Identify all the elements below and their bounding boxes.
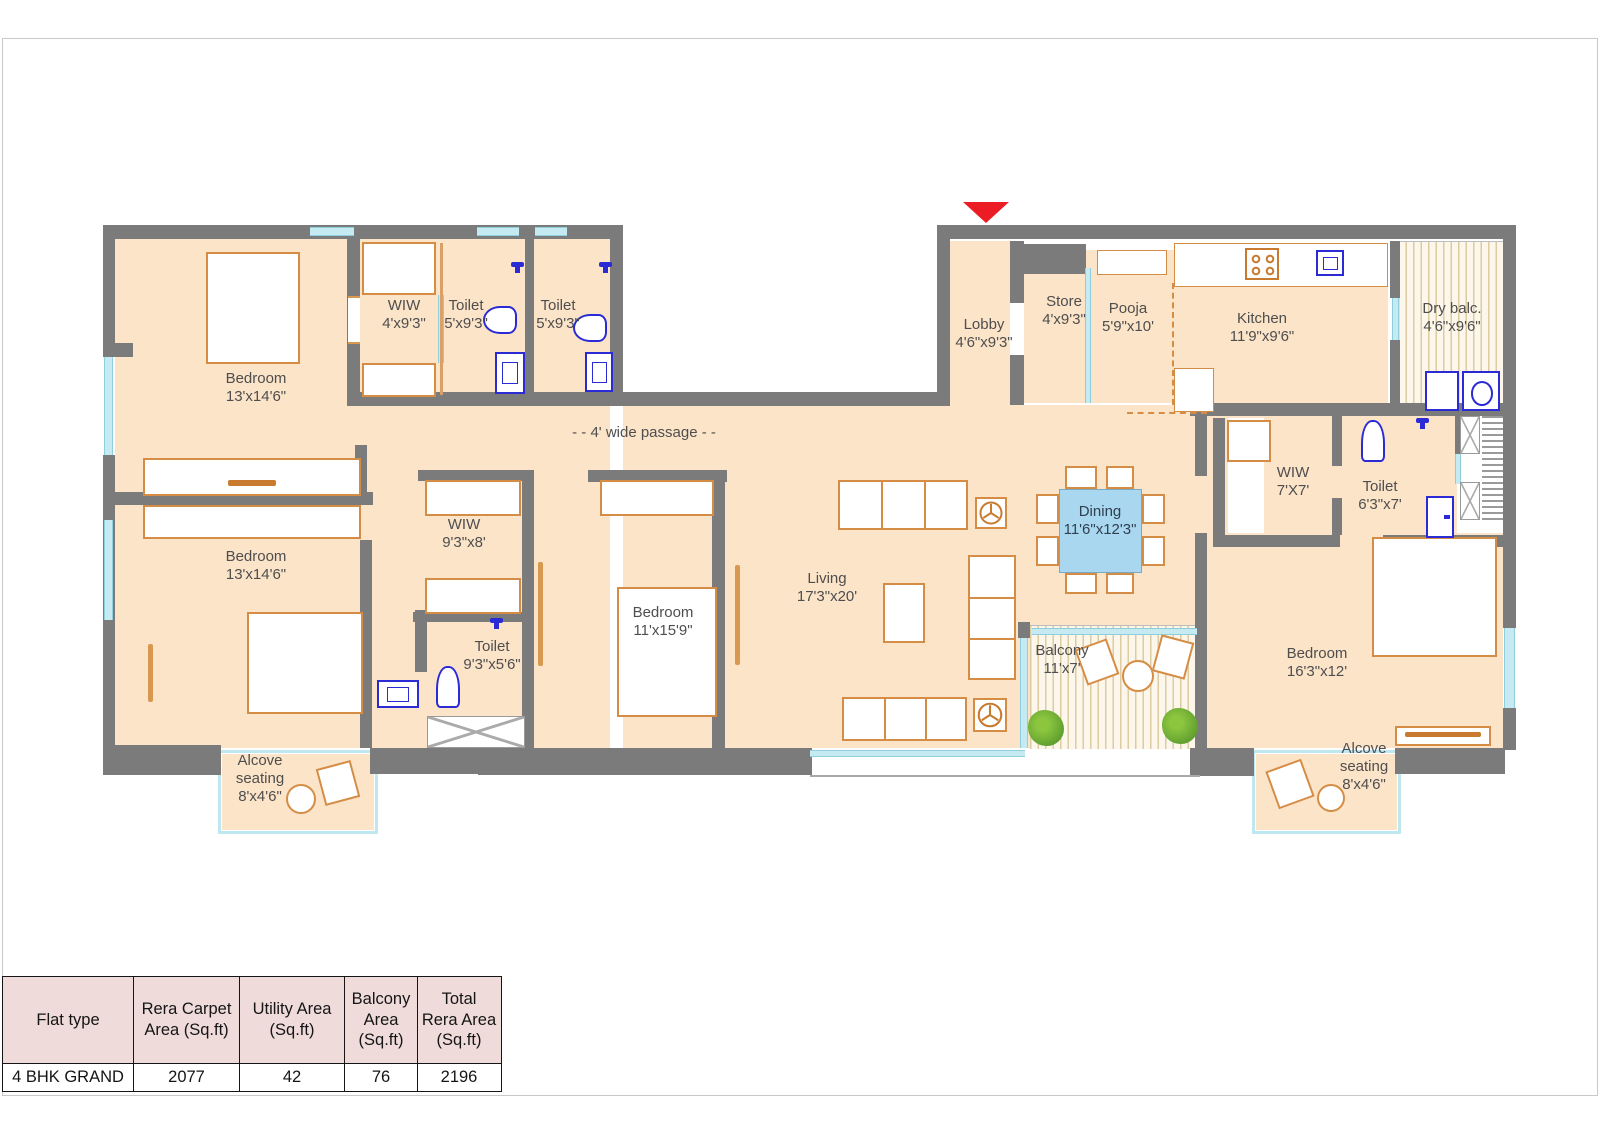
window [1392,298,1399,340]
entrance-arrow [963,202,1009,223]
wardrobe [143,505,361,539]
window [310,227,354,236]
room-label-toilet4: Toilet6'3"x7' [1358,478,1402,514]
closet [362,363,436,397]
wardrobe [143,458,361,496]
area-table-data-row: 4 BHK GRAND 2077 42 76 2196 [3,1065,502,1093]
side-table [975,497,1007,529]
wall [103,343,133,357]
bed [206,252,300,364]
room-label-alcove-right: Alcove seating8'x4'6" [1324,740,1404,794]
wall [1390,340,1400,403]
sofa [842,697,967,741]
room-label-bedroom1: Bedroom13'x14'6" [226,370,287,406]
room-label-toilet3: Toilet9'3"x5'6" [463,638,520,674]
passage-label: - - 4' wide passage - - [572,424,716,442]
pooja-shelf [1097,250,1167,275]
room-label-toilet1: Toilet5'x9'3" [444,297,488,333]
fan-icon [977,499,1005,527]
wall [525,228,534,398]
dining-chair [1065,573,1097,594]
room-label-toilet2: Toilet5'x9'3" [536,297,580,333]
door-leaf [148,644,153,702]
kitchen-appliance [1174,368,1214,412]
faucet-icon [1416,418,1429,423]
bed [1372,537,1497,657]
wall [478,748,812,775]
side-table [973,698,1007,732]
wall [415,610,427,672]
wall [1213,418,1225,535]
sofa [838,480,968,530]
wall [1195,416,1207,476]
dining-chair [1065,466,1097,489]
bed [247,612,363,714]
toilet-sink [585,352,613,392]
window [1504,628,1515,708]
wall [103,225,115,345]
kitchen-sink [1316,250,1344,276]
duct-shaft [1460,482,1480,520]
wall [610,392,950,406]
wall [103,745,221,775]
dining-chair [1106,573,1134,594]
wall [1503,225,1516,628]
dining-chair [1142,536,1165,566]
window [1455,454,1461,484]
toilet-sink [495,352,525,394]
console-unit [968,555,1016,680]
coffee-table [883,583,925,643]
wall [950,225,1515,239]
edge-line [810,775,1200,777]
dining-chair [1036,494,1059,524]
table-header-utility: Utility Area (Sq.ft) [239,976,346,1065]
table-header-total-rera: Total Rera Area (Sq.ft) [417,976,502,1065]
dining-dashed-boundary [1127,412,1207,414]
room-label-bedroom4: Bedroom16'3"x12' [1287,645,1348,681]
room-label-wiw2: WIW9'3"x8' [442,516,486,552]
plant [1028,710,1064,746]
toilet-door [1426,496,1454,538]
stove-icon [1245,248,1279,280]
room-label-pooja: Pooja5'9"x10' [1102,300,1154,336]
table-cell-rera-carpet: 2077 [133,1063,240,1092]
toilet-wc [483,306,517,334]
wall [370,748,480,774]
closet [1227,420,1271,462]
area-table: Flat type Rera Carpet Area (Sq.ft) Utili… [3,977,502,1092]
dining-chair [1142,494,1165,524]
wall [1332,416,1342,466]
area-table-header-row: Flat type Rera Carpet Area (Sq.ft) Utili… [3,977,502,1065]
table-header-rera-carpet: Rera Carpet Area (Sq.ft) [133,976,240,1065]
wall [1190,748,1254,776]
wardrobe-handle [228,480,276,486]
faucet-icon [599,262,612,267]
faucet-icon [490,618,503,623]
floor-plan-page: Bedroom13'x14'6" WIW4'x9'3" Toilet5'x9'3… [0,0,1600,1132]
table-header-balcony: Balcony Area (Sq.ft) [344,976,418,1065]
room-label-bedroom2: Bedroom13'x14'6" [226,548,287,584]
room-label-wiw1: WIW4'x9'3" [382,297,426,333]
duct-shaft [1460,416,1480,454]
table-cell-balcony: 76 [344,1063,418,1092]
wall [1023,244,1086,274]
room-label-wiw3: WIW7'X7' [1277,464,1309,500]
partition-line [440,243,443,395]
closet [425,578,521,614]
window [1020,638,1028,748]
room-label-balcony: Balcony11'x7' [1035,642,1088,678]
wall [1010,241,1024,303]
dining-chair [1106,466,1134,489]
wall [1195,533,1207,748]
wall [1332,498,1342,535]
wardrobe-handle [1405,732,1481,737]
room-label-store: Store4'x9'3" [1042,293,1086,329]
wall [522,470,534,748]
closet [362,242,436,295]
dining-chair [1036,536,1059,566]
window [477,227,519,236]
table-cell-utility: 42 [239,1063,346,1092]
door-leaf [538,562,543,666]
shower-tray [427,716,525,748]
room-label-dry-balcony: Dry balc.4'6"x9'6" [1422,300,1481,336]
washing-machine [1425,371,1459,411]
door-leaf [735,565,740,665]
room-label-alcove-left: Alcove seating8'x4'6" [222,752,298,806]
room-label-bedroom3: Bedroom11'x15'9" [633,604,694,640]
wall [1390,241,1400,298]
table-header-flat-type: Flat type [2,976,135,1065]
room-label-kitchen: Kitchen11'9"x9'6" [1230,310,1294,346]
closet [425,480,521,516]
wall [1018,622,1030,638]
window [104,357,113,455]
wardrobe [600,480,714,516]
window [535,227,567,236]
table-cell-flat-type: 4 BHK GRAND [2,1063,135,1092]
balcony-table [1122,660,1154,692]
wall [1395,748,1505,774]
washing-machine [1462,371,1500,411]
table-cell-total-rera: 2196 [417,1063,502,1092]
room-label-dining: Dining11'6"x12'3" [1064,503,1137,539]
toilet-sink [377,680,419,708]
window [104,520,113,620]
wall [937,225,950,406]
toilet-wc [1361,420,1385,462]
faucet-icon [511,262,524,267]
wall [1503,708,1516,750]
service-ladder [1482,416,1503,520]
wardrobe-dashed-door [348,296,360,344]
room-label-lobby: Lobby4'6"x9'3" [955,316,1012,352]
plant [1162,708,1198,744]
fan-icon [975,700,1005,730]
window [1085,268,1091,403]
window [1032,628,1197,635]
wall [103,620,115,748]
room-label-living: Living17'3"x20' [797,570,857,606]
toilet-wc [436,666,460,708]
wall [1010,355,1024,405]
kitchen-counter [1174,243,1388,287]
window [810,750,1025,757]
wall [1213,535,1340,547]
